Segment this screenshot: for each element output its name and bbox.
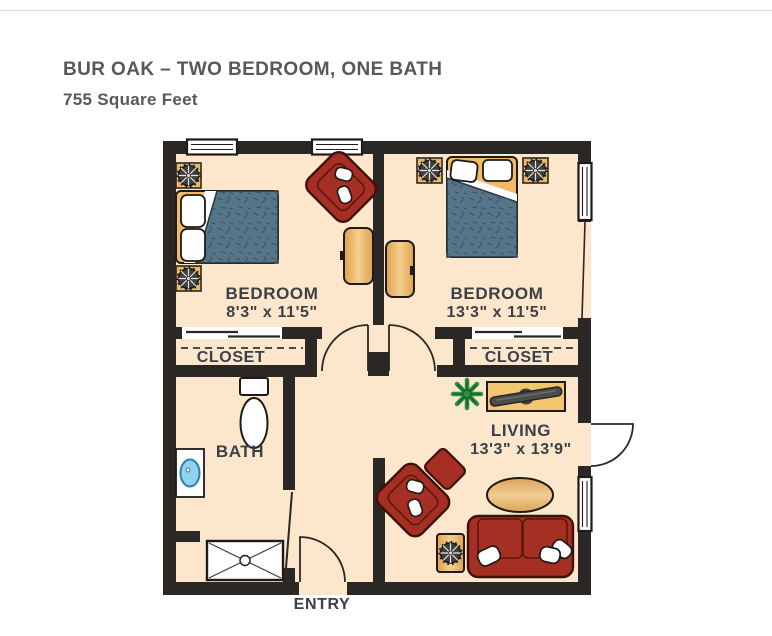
pillow-icon [181,195,205,227]
toilet-icon [240,378,268,448]
bedroom-right-dimensions: 13'3" x 11'5" [447,304,548,321]
wall-bath-right [283,377,295,490]
bath-label: BATH [216,442,264,461]
floor-plan-svg: BEDROOM 8'3" x 11'5" BEDROOM 13'3" x 11'… [0,0,772,636]
nightstand-icon [176,163,201,188]
dresser-handle [340,251,345,260]
plant-icon [178,165,200,187]
wall-bath-right-stub [283,568,295,595]
bed-icon [176,191,278,263]
dresser-icon [340,228,373,284]
pillow-icon [181,229,205,261]
tv-console-icon [487,382,565,411]
bedroom-right-label: BEDROOM [451,284,544,303]
wall-closet-right-top-b [563,327,591,339]
plant-icon [419,160,441,182]
living-label: LIVING [491,421,551,440]
wall-living-left [373,458,385,595]
sofa-icon [468,516,574,577]
nightstand-icon [176,266,201,291]
wall-closet-left-top-b [282,327,322,339]
floor-plan-page: BUR OAK – TWO BEDROOM, ONE BATH 755 Squa… [0,0,772,636]
pillow-icon [483,160,512,181]
bed-icon [447,157,517,257]
plant-icon [440,542,462,564]
wall-closet-left-side [305,339,317,369]
plant-icon [453,380,481,408]
living-dimensions: 13'3" x 13'9" [470,441,572,458]
wall-closet-left-bottom [163,365,317,377]
living-exterior-door-icon [591,424,633,466]
side-table-icon [437,534,464,572]
wall-closet-left-top-a [163,327,182,339]
shower-icon [207,541,283,580]
sink-icon [176,449,204,497]
window-icon [187,140,237,155]
pillow-icon [450,159,478,182]
closet-right-label: CLOSET [485,349,554,366]
wall-bottom-left [163,582,299,595]
nightstand-icon [523,158,548,183]
nightstand-icon [417,158,442,183]
window-icon [579,477,592,531]
window-icon [579,163,592,220]
closet-left-label: CLOSET [197,349,266,366]
dresser-handle [410,266,415,275]
wall-closet-right-bottom [437,365,591,377]
bedroom-left-label: BEDROOM [226,284,319,303]
wall-shower-jog [163,531,200,542]
bedroom-left-dimensions: 8'3" x 11'5" [226,304,317,321]
dresser-icon [386,241,415,297]
plant-icon [525,160,547,182]
coffee-table-icon [487,478,553,512]
wall-bedroom-divider [373,141,384,325]
wall-hall-stub [368,352,389,376]
entry-label: ENTRY [294,596,351,613]
plant-icon [178,268,200,290]
